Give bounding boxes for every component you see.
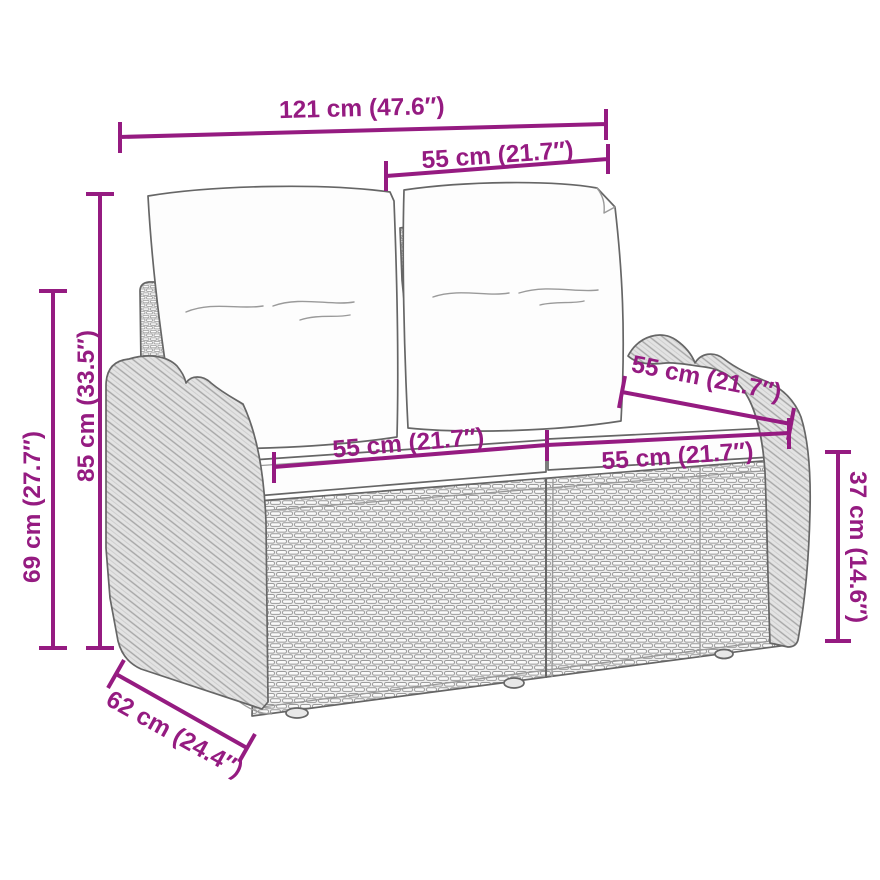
- bench-foot: [286, 708, 308, 718]
- dimension-label-seat-height: 37 cm (14.6″): [844, 471, 871, 623]
- dimension-label-armrest-height: 69 cm (27.7″): [19, 431, 46, 583]
- base-panel: [252, 459, 788, 716]
- dimension-seat-height: 37 cm (14.6″): [825, 452, 871, 641]
- dimension-label-total-height: 85 cm (33.5″): [73, 330, 100, 482]
- dimension-armrest-height: 69 cm (27.7″): [19, 291, 67, 648]
- back-cushion-right: [403, 183, 623, 432]
- garden-bench-dimension-diagram: 121 cm (47.6″) 55 cm (21.7″) 85 cm (33.5…: [0, 0, 880, 880]
- bench-foot: [504, 678, 524, 688]
- left-armrest: [106, 356, 268, 709]
- dimension-diagram-page: 121 cm (47.6″) 55 cm (21.7″) 85 cm (33.5…: [0, 0, 880, 880]
- dimension-label-back-cushion-width-top: 55 cm (21.7″): [421, 137, 575, 175]
- bench-foot: [715, 650, 733, 659]
- dimension-label-overall-width: 121 cm (47.6″): [279, 93, 445, 124]
